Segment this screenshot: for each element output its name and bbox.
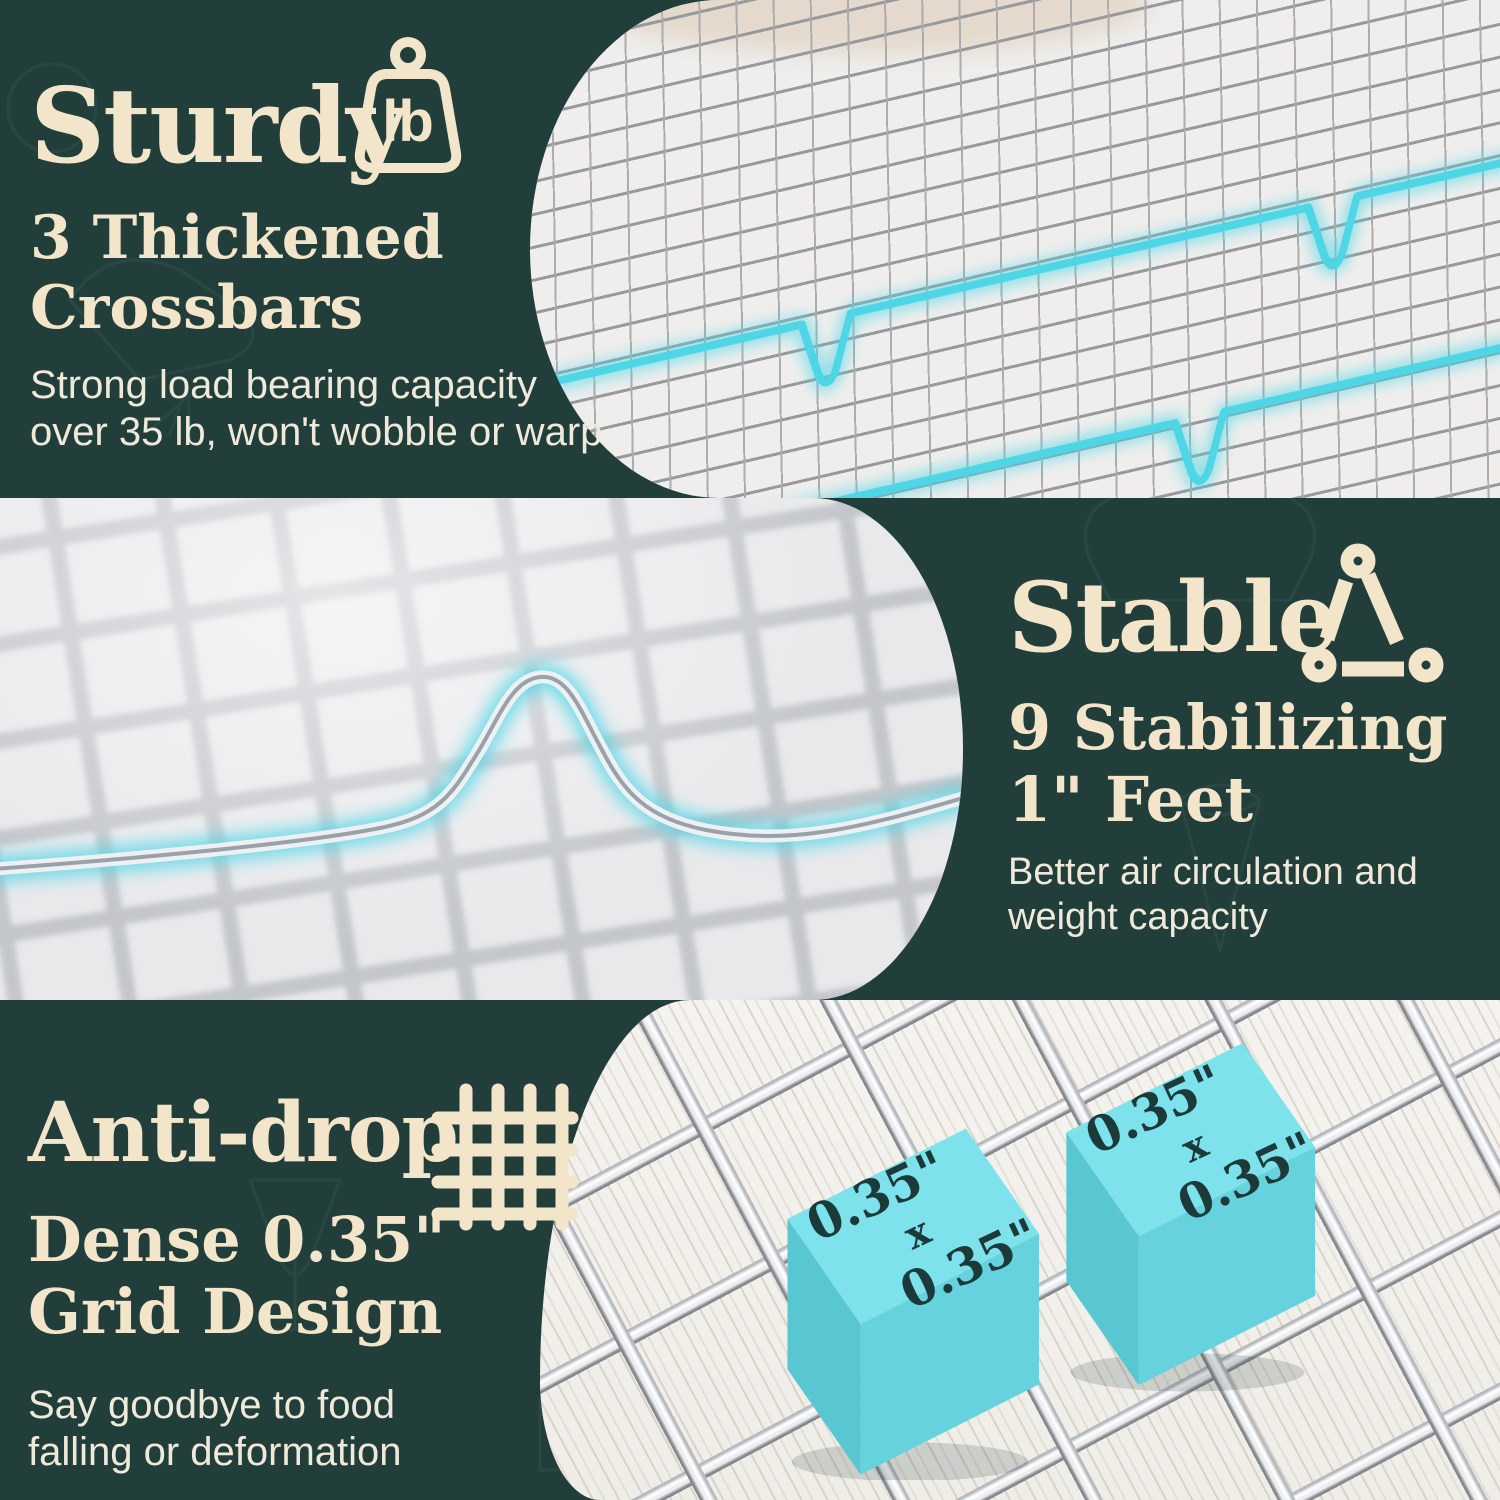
sturdy-subheading: 3 Thickened Crossbars xyxy=(30,204,444,343)
highlighted-crossbars xyxy=(530,0,1500,498)
lb-icon-label: lb xyxy=(382,89,434,154)
sturdy-subheading-line1: 3 Thickened xyxy=(30,204,444,274)
stable-subheading-line2: 1" Feet xyxy=(1008,764,1448,836)
glowing-foot-wire xyxy=(0,498,963,1000)
antidrop-body: Say goodbye to food falling or deformati… xyxy=(28,1382,402,1476)
grid-icon xyxy=(430,1082,580,1232)
rack-photo-bottom: 0.35" x 0.35" 0.35" x 0.35" xyxy=(540,1000,1500,1500)
antidrop-subheading-line2: Grid Design xyxy=(28,1276,446,1348)
stable-subheading: 9 Stabilizing 1" Feet xyxy=(1008,692,1448,836)
rack-photo-middle xyxy=(0,498,963,1000)
sturdy-body: Strong load bearing capacity over 35 lb,… xyxy=(30,362,602,456)
antidrop-heading: Anti-drop xyxy=(28,1092,458,1174)
stable-body-line1: Better air circulation and xyxy=(1008,850,1418,895)
wire-grid xyxy=(530,0,1500,498)
stable-body-line2: weight capacity xyxy=(1008,895,1418,940)
lb-weight-icon: lb xyxy=(348,36,468,186)
stable-body: Better air circulation and weight capaci… xyxy=(1008,850,1418,940)
stable-subheading-line1: 9 Stabilizing xyxy=(1008,692,1448,764)
dimension-cube-2: 0.35" x 0.35" xyxy=(1060,1030,1315,1395)
antidrop-body-line2: falling or deformation xyxy=(28,1429,402,1476)
antidrop-subheading: Dense 0.35" Grid Design xyxy=(28,1204,446,1348)
product-infographic: 0.35" x 0.35" 0.35" x 0.35" Sturdy lb 3 … xyxy=(0,0,1500,1500)
sturdy-body-line1: Strong load bearing capacity xyxy=(30,362,602,409)
sturdy-subheading-line2: Crossbars xyxy=(30,274,444,344)
antidrop-body-line1: Say goodbye to food xyxy=(28,1382,402,1429)
triangle-feet-icon xyxy=(1296,538,1456,688)
rack-photo-top xyxy=(530,0,1500,498)
dimension-cube-1: 0.35" x 0.35" xyxy=(780,1120,1040,1480)
sturdy-body-line2: over 35 lb, won't wobble or warp xyxy=(30,409,602,456)
antidrop-subheading-line1: Dense 0.35" xyxy=(28,1204,446,1276)
stable-heading: Stable xyxy=(1008,570,1337,666)
